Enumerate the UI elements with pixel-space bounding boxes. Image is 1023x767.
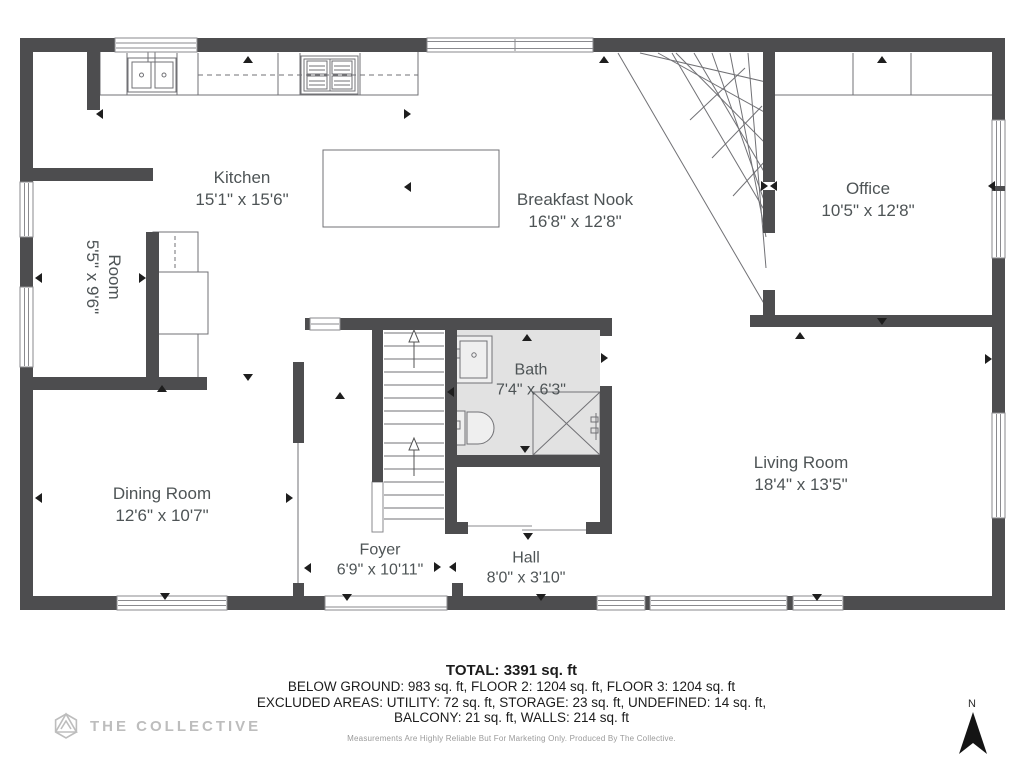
room-name: Foyer bbox=[337, 540, 424, 560]
room-label-dining-room: Dining Room 12'6" x 10'7" bbox=[113, 483, 211, 527]
collective-logo-icon bbox=[52, 712, 80, 740]
room-name: Hall bbox=[487, 548, 566, 568]
room-name: Breakfast Nook bbox=[517, 189, 633, 211]
room-label-bath: Bath 7'4" x 6'3" bbox=[496, 360, 566, 399]
room-label-kitchen: Kitchen 15'1" x 15'6" bbox=[195, 167, 288, 211]
north-label: N bbox=[948, 698, 996, 710]
stairs-winder bbox=[618, 53, 766, 307]
excluded-line: EXCLUDED AREAS: UTILITY: 72 sq. ft, STOR… bbox=[0, 695, 1023, 711]
total-area: TOTAL: 3391 sq. ft bbox=[0, 662, 1023, 679]
room-label-office: Office 10'5" x 12'8" bbox=[821, 178, 914, 222]
kitchen-sink-icon bbox=[128, 52, 176, 92]
room-name: Bath bbox=[496, 360, 566, 380]
toilet-icon bbox=[452, 411, 494, 445]
stair-up-arrows bbox=[409, 330, 419, 476]
room-dims: 12'6" x 10'7" bbox=[113, 505, 211, 527]
room-name: Kitchen bbox=[195, 167, 288, 189]
brand-logo-text: THE COLLECTIVE bbox=[90, 718, 261, 735]
room-dims: 16'8" x 12'8" bbox=[517, 211, 633, 233]
north-arrow: N bbox=[950, 698, 996, 763]
room-dims: 5'5" x 9'6" bbox=[81, 240, 103, 314]
north-arrow-icon bbox=[950, 710, 996, 758]
room-dims: 7'4" x 6'3" bbox=[496, 380, 566, 400]
room-name: Dining Room bbox=[113, 483, 211, 505]
room-dims: 6'9" x 10'11" bbox=[337, 560, 424, 580]
room-label-hall: Hall 8'0" x 3'10" bbox=[487, 548, 566, 587]
room-label-breakfast-nook: Breakfast Nook 16'8" x 12'8" bbox=[517, 189, 633, 233]
fridge-cabinet-icon bbox=[153, 232, 208, 380]
room-dims: 15'1" x 15'6" bbox=[195, 189, 288, 211]
room-name: Living Room bbox=[754, 452, 849, 474]
room-label-foyer: Foyer 6'9" x 10'11" bbox=[337, 540, 424, 579]
room-label-living-room: Living Room 18'4" x 13'5" bbox=[754, 452, 849, 496]
room-dims: 8'0" x 3'10" bbox=[487, 568, 566, 588]
floorplan-page: Kitchen 15'1" x 15'6" Breakfast Nook 16'… bbox=[0, 0, 1023, 767]
room-name: Office bbox=[821, 178, 914, 200]
room-dims: 10'5" x 12'8" bbox=[821, 200, 914, 222]
brand-logo: THE COLLECTIVE bbox=[52, 712, 261, 740]
floors-line: BELOW GROUND: 983 sq. ft, FLOOR 2: 1204 … bbox=[0, 679, 1023, 695]
room-label-room: Room 5'5" x 9'6" bbox=[81, 240, 125, 314]
room-dims: 18'4" x 13'5" bbox=[754, 474, 849, 496]
bath-vanity-icon bbox=[452, 336, 492, 383]
room-name: Room bbox=[103, 240, 125, 314]
